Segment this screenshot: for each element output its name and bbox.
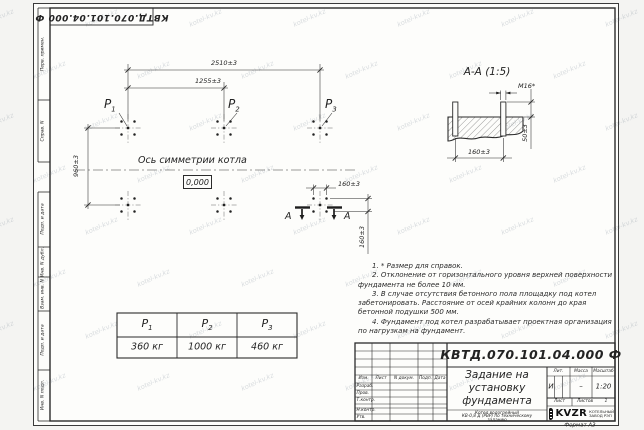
plan-dim-height: 960±3 — [73, 155, 80, 177]
plan-point-p2: P2 — [228, 98, 240, 113]
tb-mass-value: – — [579, 384, 583, 391]
section-letter-right: А — [344, 212, 351, 222]
tb-row-prov: Пров. — [357, 392, 370, 396]
note-2: 2. Отклонение от горизонтального уровня … — [358, 271, 614, 290]
watermark-text: kotel-kv.kz — [0, 319, 15, 340]
load-table-value-p2: 1000 кг — [188, 342, 226, 352]
tb-col-podp: Подп. — [419, 377, 432, 381]
tb-mass-header: Масса — [574, 369, 588, 373]
frame-label-inv-dubl: Инв. N дубл. — [42, 247, 47, 277]
frame-label-inv-podl: Инв. N подл. — [42, 380, 47, 410]
tb-row-razrab: Разраб. — [357, 385, 374, 389]
tb-product-line3: заданию — [487, 417, 506, 421]
load-table-value-p3: 460 кг — [251, 342, 283, 352]
title-block-title-line3: фундамента — [462, 396, 532, 407]
frame-label-podp-data-2: Подп. и дата — [42, 324, 47, 355]
tb-scale-value: 1:20 — [596, 384, 612, 391]
section-dim-width: 160±3 — [468, 149, 490, 156]
tb-scale-header: Масштаб — [593, 369, 613, 373]
frame-label-sprav-n: Справ. N — [42, 120, 47, 141]
frame-label-podp-data-1: Подп. и дата — [42, 203, 47, 234]
section-bolt-label: М16* — [518, 83, 535, 90]
company-logo: KVZR КОТЕЛЬНЫЙ ЗАВОД РЭП — [549, 407, 614, 420]
notes-block: 1. * Размер для справок. 2. Отклонение о… — [358, 262, 614, 336]
tb-col-izm: Изм. — [358, 377, 368, 381]
load-table-header-p2: P2 — [201, 318, 212, 332]
plan-level-mark: 0,000 — [183, 175, 212, 189]
plan-dim-bolt-x: 160±3 — [338, 181, 360, 188]
plan-dim-half: 1255±3 — [195, 78, 221, 85]
tb-sheets-value: 1 — [605, 400, 608, 404]
watermark-text: kotel-kv.kz — [0, 215, 15, 236]
company-name: КОТЕЛЬНЫЙ ЗАВОД РЭП — [589, 410, 614, 418]
drawing-screenshot: kotel-kv.kzkotel-kv.kzkotel-kv.kzkotel-k… — [0, 0, 644, 430]
note-3: 3. В случае отсутствия бетонного пола пл… — [358, 290, 614, 318]
note-4: 4. Фундамент под котел разрабатывает про… — [358, 318, 614, 337]
title-block-designation: КВТД.070.101.04.000 Ф — [440, 349, 621, 362]
section-title: А-А (1:5) — [464, 67, 511, 78]
plan-dim-total: 2510±3 — [211, 60, 237, 67]
load-table-header-p3: P3 — [261, 318, 272, 332]
tb-col-dokum: N докум. — [394, 377, 414, 381]
tb-sheet-header: Лист — [554, 400, 565, 404]
sheet-border — [33, 3, 619, 426]
watermark-text: kotel-kv.kz — [0, 111, 15, 132]
plan-point-p3: P3 — [325, 98, 337, 113]
watermark-text: kotel-kv.kz — [0, 7, 15, 28]
title-block-title-line1: Задание на — [465, 370, 529, 381]
designation-flipped: КВТД.070.101.04.000 Ф — [50, 8, 153, 25]
plan-point-p1: P1 — [104, 98, 116, 113]
load-table-value-p1: 360 кг — [131, 342, 163, 352]
kvzr-logo-icon — [549, 408, 553, 420]
plan-axis-label: Ось симметрии котла — [138, 156, 247, 166]
format-note: Формат А3 — [564, 423, 595, 429]
load-table-header-p1: P1 — [141, 318, 152, 332]
tb-row-tkontr: Т.контр. — [357, 399, 376, 403]
tb-col-data: Дата — [434, 377, 445, 381]
tb-lit-header: Лит. — [554, 369, 564, 373]
tb-sheets-header: Листов — [577, 400, 593, 404]
plan-dim-bolt-y: 160±3 — [359, 226, 366, 248]
title-block-title-line2: установку — [469, 383, 526, 394]
section-dim-height: 50±3 — [522, 124, 529, 142]
section-letter-left: А — [285, 212, 292, 222]
tb-row-nkontr: Н.контр. — [357, 409, 376, 413]
tb-row-utv: Утв. — [357, 416, 366, 420]
tb-lit-value: И — [548, 384, 553, 391]
designation-flipped-text: КВТД.070.101.04.000 Ф — [35, 12, 169, 22]
frame-label-perv-primen: Перв. примен. — [42, 37, 47, 72]
frame-label-vzam-inv: Взам. инв. N — [42, 279, 47, 309]
kvzr-logo-text: KVZR — [555, 408, 587, 419]
note-1: 1. * Размер для справок. — [358, 262, 614, 271]
tb-col-list: Лист — [376, 377, 387, 381]
